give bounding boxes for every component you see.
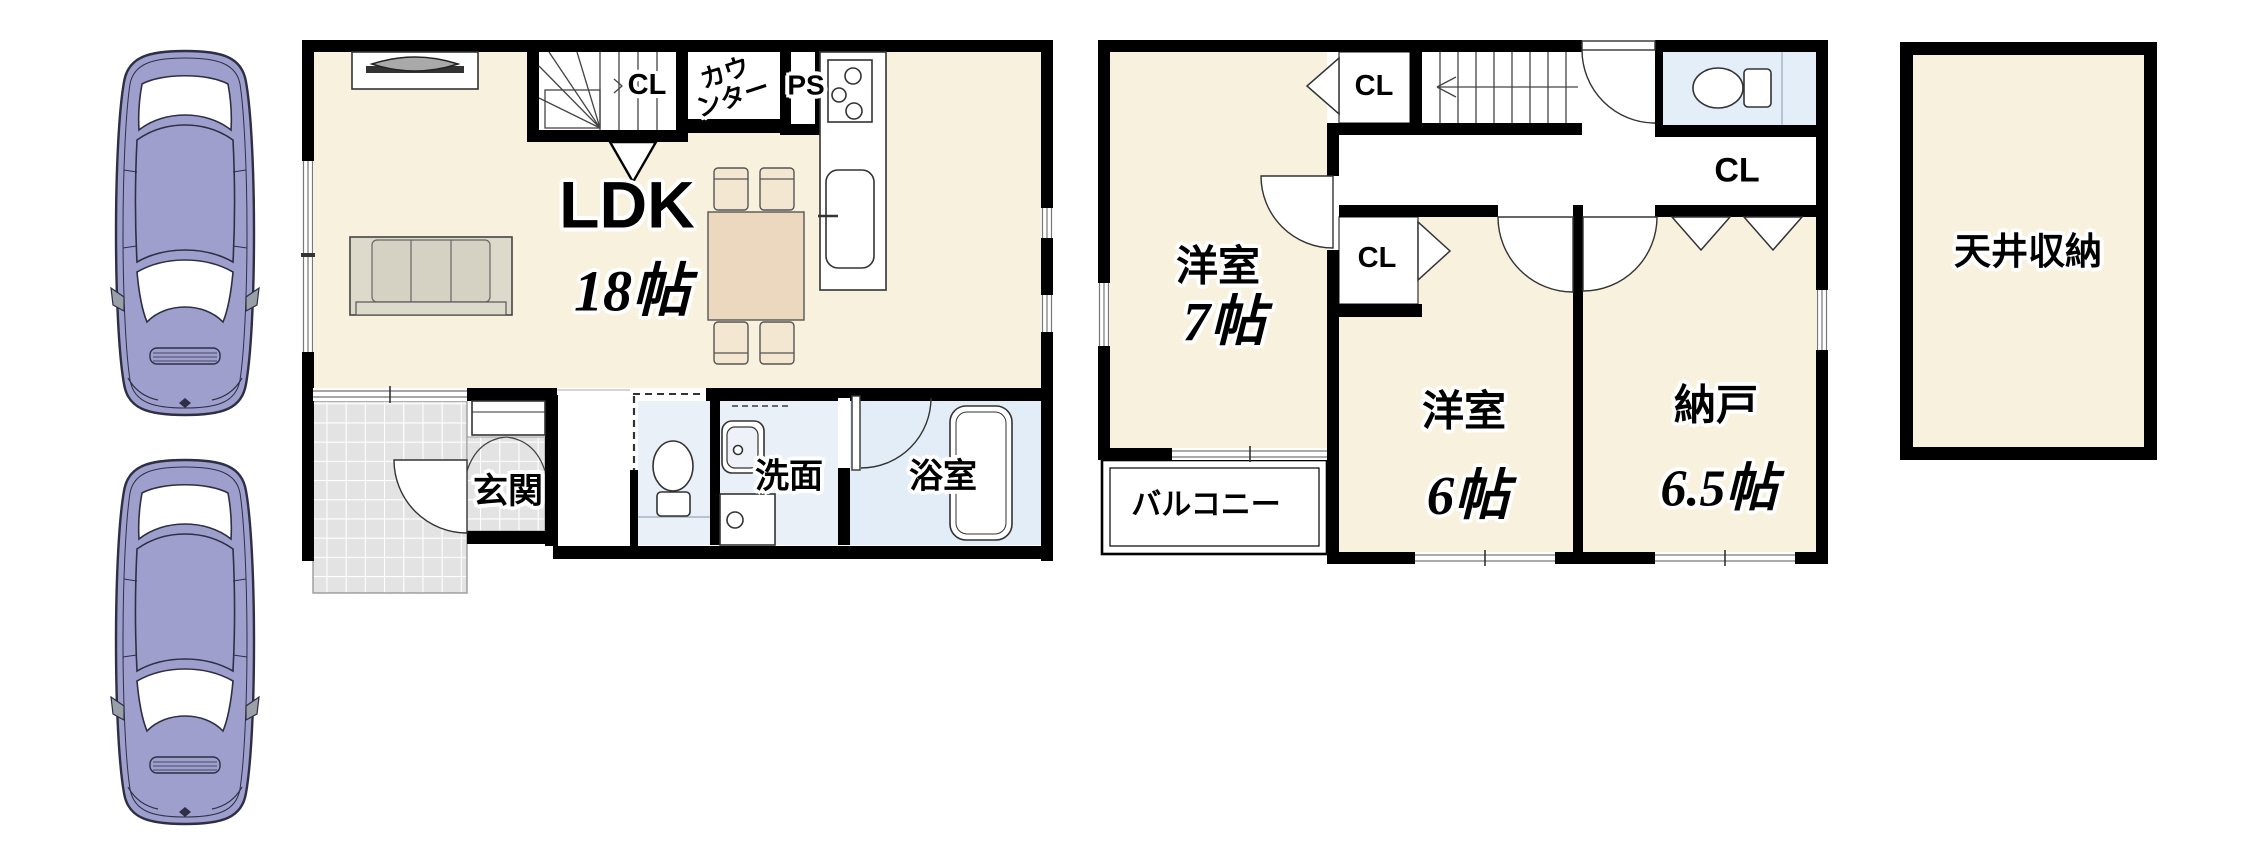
floorplan-canvas: LDK 18帖 CL カウ ンター PS 玄関 洗面 浴室 CL CL CL 洋… — [0, 0, 2255, 867]
shoe-cabinet — [472, 401, 545, 435]
senmen-label: 洗面 — [755, 460, 823, 495]
balcony-label: バルコニー — [1131, 491, 1280, 522]
room6-size-label: 6帖 — [1427, 468, 1510, 524]
sofa — [350, 237, 512, 315]
car-bottom — [111, 460, 259, 824]
closet-top-label: CL — [1355, 72, 1394, 102]
toilet2-door-leaf — [1582, 41, 1655, 50]
pipe-space-label: PS — [787, 72, 824, 101]
chair — [714, 322, 748, 364]
chair — [760, 168, 794, 210]
nando-label: 納戸 — [1674, 385, 1758, 428]
chair — [714, 168, 748, 210]
car-top — [111, 51, 259, 415]
closet-mid-label: CL — [1358, 244, 1397, 274]
kitchen — [818, 52, 886, 290]
room7-size-label: 7帖 — [1183, 294, 1266, 350]
chair — [760, 322, 794, 364]
room7-label: 洋室 — [1176, 246, 1260, 289]
room6-label: 洋室 — [1422, 391, 1506, 434]
ldk-size-label: 18帖 — [574, 261, 690, 320]
floorplan-drawing — [0, 0, 2255, 867]
attic-label: 天井収納 — [1954, 233, 2102, 271]
bath-door-leaf — [852, 396, 860, 470]
kitchen-sink — [826, 170, 874, 268]
nando-size-label: 6.5帖 — [1660, 462, 1777, 515]
closet-right-label: CL — [1714, 154, 1759, 189]
bathroom-label: 浴室 — [909, 460, 977, 495]
genkan-label: 玄関 — [473, 474, 543, 510]
tv-board — [352, 52, 478, 89]
ldk-label: LDK — [559, 171, 695, 238]
stair-closet-label: CL — [628, 71, 667, 101]
dining-table — [708, 212, 804, 320]
